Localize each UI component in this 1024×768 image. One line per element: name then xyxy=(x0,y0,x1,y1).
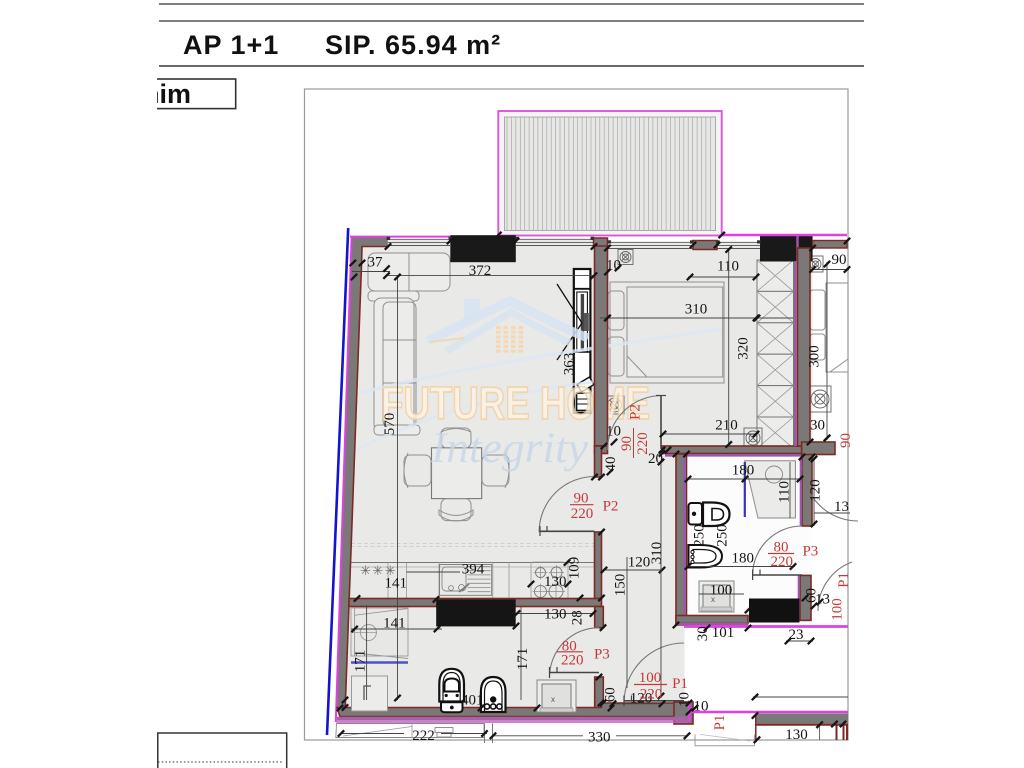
svg-text:120: 120 xyxy=(628,555,651,571)
svg-text:10: 10 xyxy=(677,692,693,707)
svg-text:FUTURE HOME: FUTURE HOME xyxy=(381,377,650,429)
svg-text:100: 100 xyxy=(710,583,733,599)
svg-text:310: 310 xyxy=(685,302,708,318)
svg-text:401: 401 xyxy=(461,692,484,708)
svg-text:110: 110 xyxy=(717,259,739,275)
svg-text:100: 100 xyxy=(830,598,846,621)
svg-text:171: 171 xyxy=(515,648,531,671)
svg-text:220: 220 xyxy=(770,554,793,570)
svg-text:220: 220 xyxy=(561,653,584,669)
svg-text:P1: P1 xyxy=(712,715,728,731)
svg-text:100: 100 xyxy=(639,670,662,686)
svg-text:P1: P1 xyxy=(672,676,688,692)
svg-text:150: 150 xyxy=(613,574,629,597)
svg-text:171: 171 xyxy=(353,650,369,673)
svg-text:P3: P3 xyxy=(802,544,818,560)
svg-text:570: 570 xyxy=(382,413,398,436)
svg-text:37: 37 xyxy=(368,255,384,271)
svg-text:141: 141 xyxy=(385,575,408,591)
svg-text:30: 30 xyxy=(695,626,711,641)
svg-text:101: 101 xyxy=(712,625,735,641)
svg-text:180: 180 xyxy=(732,463,755,479)
svg-text:Integrity: Integrity xyxy=(430,425,589,472)
svg-text:110: 110 xyxy=(777,481,793,503)
svg-text:220: 220 xyxy=(640,687,663,703)
svg-text:130: 130 xyxy=(544,607,567,623)
svg-text:210: 210 xyxy=(715,418,738,434)
svg-text:330: 330 xyxy=(588,730,611,746)
svg-text:130: 130 xyxy=(544,574,567,590)
svg-text:220: 220 xyxy=(571,506,594,522)
svg-text:222: 222 xyxy=(412,728,435,744)
svg-text:300: 300 xyxy=(807,345,823,368)
svg-text:13: 13 xyxy=(834,499,849,515)
svg-text:28: 28 xyxy=(570,610,586,625)
svg-text:120: 120 xyxy=(808,479,824,502)
svg-text:250: 250 xyxy=(692,524,708,547)
svg-text:40: 40 xyxy=(603,457,619,472)
svg-text:90: 90 xyxy=(619,436,635,451)
svg-text:372: 372 xyxy=(469,263,492,279)
svg-text:x: x xyxy=(551,695,555,704)
svg-text:141: 141 xyxy=(383,616,406,632)
svg-text:23: 23 xyxy=(789,627,804,643)
svg-text:130: 130 xyxy=(785,727,808,743)
svg-text:P2: P2 xyxy=(628,404,644,420)
svg-text:90: 90 xyxy=(832,252,847,268)
svg-text:320: 320 xyxy=(736,337,752,360)
svg-text:P2: P2 xyxy=(603,499,619,515)
svg-text:310: 310 xyxy=(649,542,665,565)
svg-text:363: 363 xyxy=(562,353,578,376)
svg-text:P1: P1 xyxy=(836,572,852,588)
svg-text:30: 30 xyxy=(810,418,825,434)
svg-text:394: 394 xyxy=(462,562,485,578)
svg-text:SIP. 65.94 m²: SIP. 65.94 m² xyxy=(325,30,501,60)
svg-text:AP 1+1: AP 1+1 xyxy=(183,30,279,60)
svg-text:180: 180 xyxy=(731,551,754,567)
svg-text:90: 90 xyxy=(838,433,854,448)
svg-text:P3: P3 xyxy=(594,647,610,663)
svg-text:250: 250 xyxy=(715,524,731,547)
